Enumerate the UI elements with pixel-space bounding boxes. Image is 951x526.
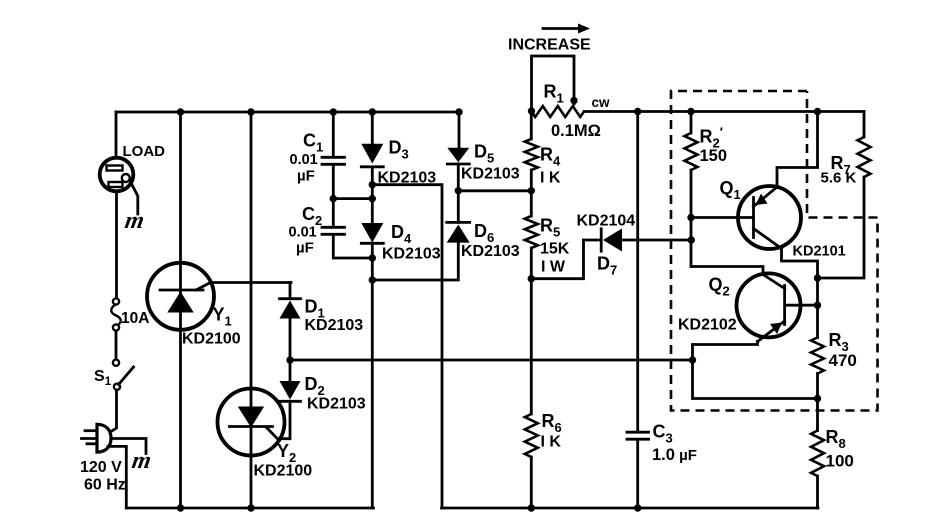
svg-text:KD2103: KD2103 xyxy=(461,166,520,183)
svg-text:KD2103: KD2103 xyxy=(382,246,441,263)
svg-text:KD2103: KD2103 xyxy=(305,317,364,334)
svg-text:0.1MΩ: 0.1MΩ xyxy=(551,122,601,140)
svg-text:µF: µF xyxy=(296,240,314,257)
svg-text:15K: 15K xyxy=(540,241,570,258)
svg-text:470: 470 xyxy=(829,351,857,370)
svg-text:I W: I W xyxy=(541,259,566,276)
svg-text:KD2101: KD2101 xyxy=(793,244,846,260)
svg-text:100: 100 xyxy=(826,452,854,471)
svg-text:KD2103: KD2103 xyxy=(378,170,437,187)
svg-text:KD2104: KD2104 xyxy=(577,213,636,230)
svg-text:I K: I K xyxy=(540,170,561,187)
svg-text:0.01: 0.01 xyxy=(290,152,318,168)
svg-text:10A: 10A xyxy=(121,310,149,327)
svg-text:150: 150 xyxy=(700,147,728,165)
svg-text:I K: I K xyxy=(541,434,562,451)
svg-text:KD2103: KD2103 xyxy=(307,396,366,413)
svg-text:µF: µF xyxy=(297,168,315,185)
svg-text:5.6 K: 5.6 K xyxy=(821,170,857,187)
svg-text:1.0 µF: 1.0 µF xyxy=(652,446,697,464)
svg-text:LOAD: LOAD xyxy=(123,143,166,160)
svg-text:0.01: 0.01 xyxy=(289,225,317,241)
svg-text:60 Hz: 60 Hz xyxy=(84,477,126,494)
svg-text:cw: cw xyxy=(592,95,611,110)
svg-text:KD2100: KD2100 xyxy=(254,463,313,480)
svg-text:KD2102: KD2102 xyxy=(678,317,737,334)
svg-text:KD2103: KD2103 xyxy=(461,243,520,260)
svg-text:120 V: 120 V xyxy=(80,459,122,476)
svg-text:INCREASE: INCREASE xyxy=(508,37,591,54)
svg-text:KD2100: KD2100 xyxy=(182,331,241,348)
